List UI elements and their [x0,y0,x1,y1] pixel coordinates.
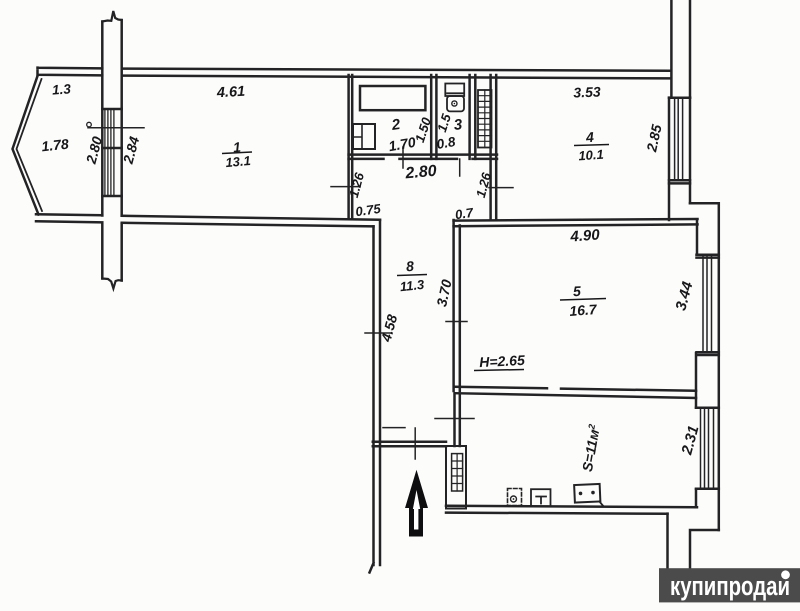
svg-text:1.3: 1.3 [52,81,72,97]
svg-text:2.80: 2.80 [404,163,438,183]
svg-text:купипродаи: купипродаи [670,571,790,601]
svg-text:8: 8 [405,258,414,275]
svg-text:H=2.65: H=2.65 [479,352,526,370]
svg-text:16.7: 16.7 [569,301,599,319]
svg-text:10.1: 10.1 [578,147,604,164]
svg-text:5: 5 [573,283,582,299]
svg-text:0.7: 0.7 [454,205,475,222]
svg-text:4: 4 [584,129,594,146]
svg-text:11.3: 11.3 [399,277,426,295]
svg-text:4.61: 4.61 [216,84,246,102]
svg-text:4.90: 4.90 [569,226,601,245]
svg-text:3.53: 3.53 [573,84,601,101]
svg-text:13.1: 13.1 [225,153,252,170]
svg-text:1.78: 1.78 [41,136,70,155]
